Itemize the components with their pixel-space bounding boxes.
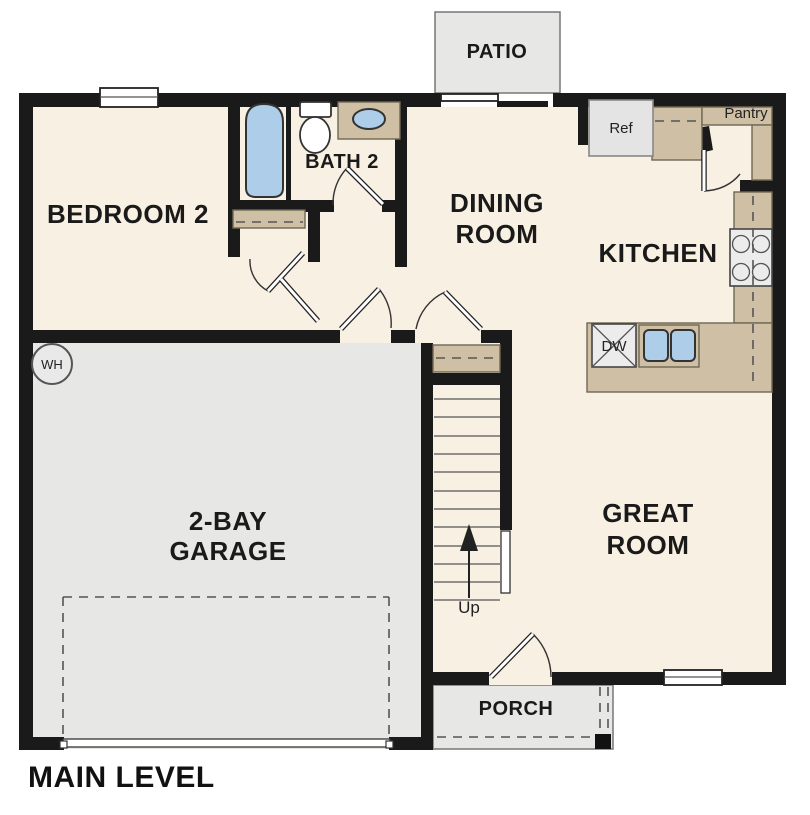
bath2-label: BATH 2 (305, 151, 379, 173)
wall-segment (19, 737, 64, 750)
wall-segment (721, 672, 786, 685)
up-label: Up (458, 598, 480, 617)
floor-plan: PATIO BEDROOM 2 BATH 2 DININGROOM KITCHE… (0, 0, 810, 810)
wall-closet-right (308, 212, 320, 262)
dishwasher-label: DW (602, 338, 628, 355)
pantry-shelf-right (752, 125, 772, 180)
wall-segment (389, 737, 433, 750)
plan-title: MAIN LEVEL (28, 761, 215, 794)
dining-label: DININGROOM (450, 188, 544, 249)
garage-door-jamb (60, 741, 67, 748)
wall-bedroom-right (228, 107, 240, 257)
wall-segment (433, 672, 489, 685)
wall-segment (552, 672, 665, 685)
sink-bowl-right (671, 330, 695, 361)
bath-sink (353, 109, 385, 129)
wall-left (19, 93, 33, 750)
floor-plan-canvas: PATIO BEDROOM 2 BATH 2 DININGROOM KITCHE… (0, 0, 810, 810)
wall-stair-left (421, 343, 433, 737)
bedroom2-label: BEDROOM 2 (47, 199, 209, 229)
wall-ref-stub (578, 93, 588, 145)
garage-door-jamb (386, 741, 393, 748)
wall-garage-top (33, 330, 340, 343)
wall-pantry-bottom (740, 180, 786, 192)
stair-handrail (501, 531, 510, 593)
porch-label: PORCH (479, 698, 554, 720)
patio-label: PATIO (467, 41, 528, 63)
wall-stair-closet (433, 373, 512, 385)
toilet-bowl (300, 117, 330, 153)
bathtub (246, 104, 283, 197)
toilet-tank (300, 102, 331, 117)
kitchen-label: KITCHEN (598, 238, 717, 268)
bedroom-closet-shelf (233, 210, 305, 228)
water-heater-label: WH (41, 357, 63, 372)
porch-post (595, 734, 611, 749)
kitchen-corner-cabinet (652, 107, 702, 160)
refrigerator-label: Ref (609, 120, 633, 137)
wall-stair-right (500, 343, 512, 530)
wall-tub-separator (286, 107, 291, 200)
garage-door-panel (63, 739, 390, 747)
patio-slider-panel (441, 94, 498, 101)
front-door-threshold (489, 672, 552, 685)
patio-slider-panel (497, 101, 548, 107)
wall-segment (391, 330, 415, 343)
sink-bowl-left (644, 330, 668, 361)
wall-segment (481, 330, 512, 343)
pantry-label: Pantry (724, 105, 768, 122)
